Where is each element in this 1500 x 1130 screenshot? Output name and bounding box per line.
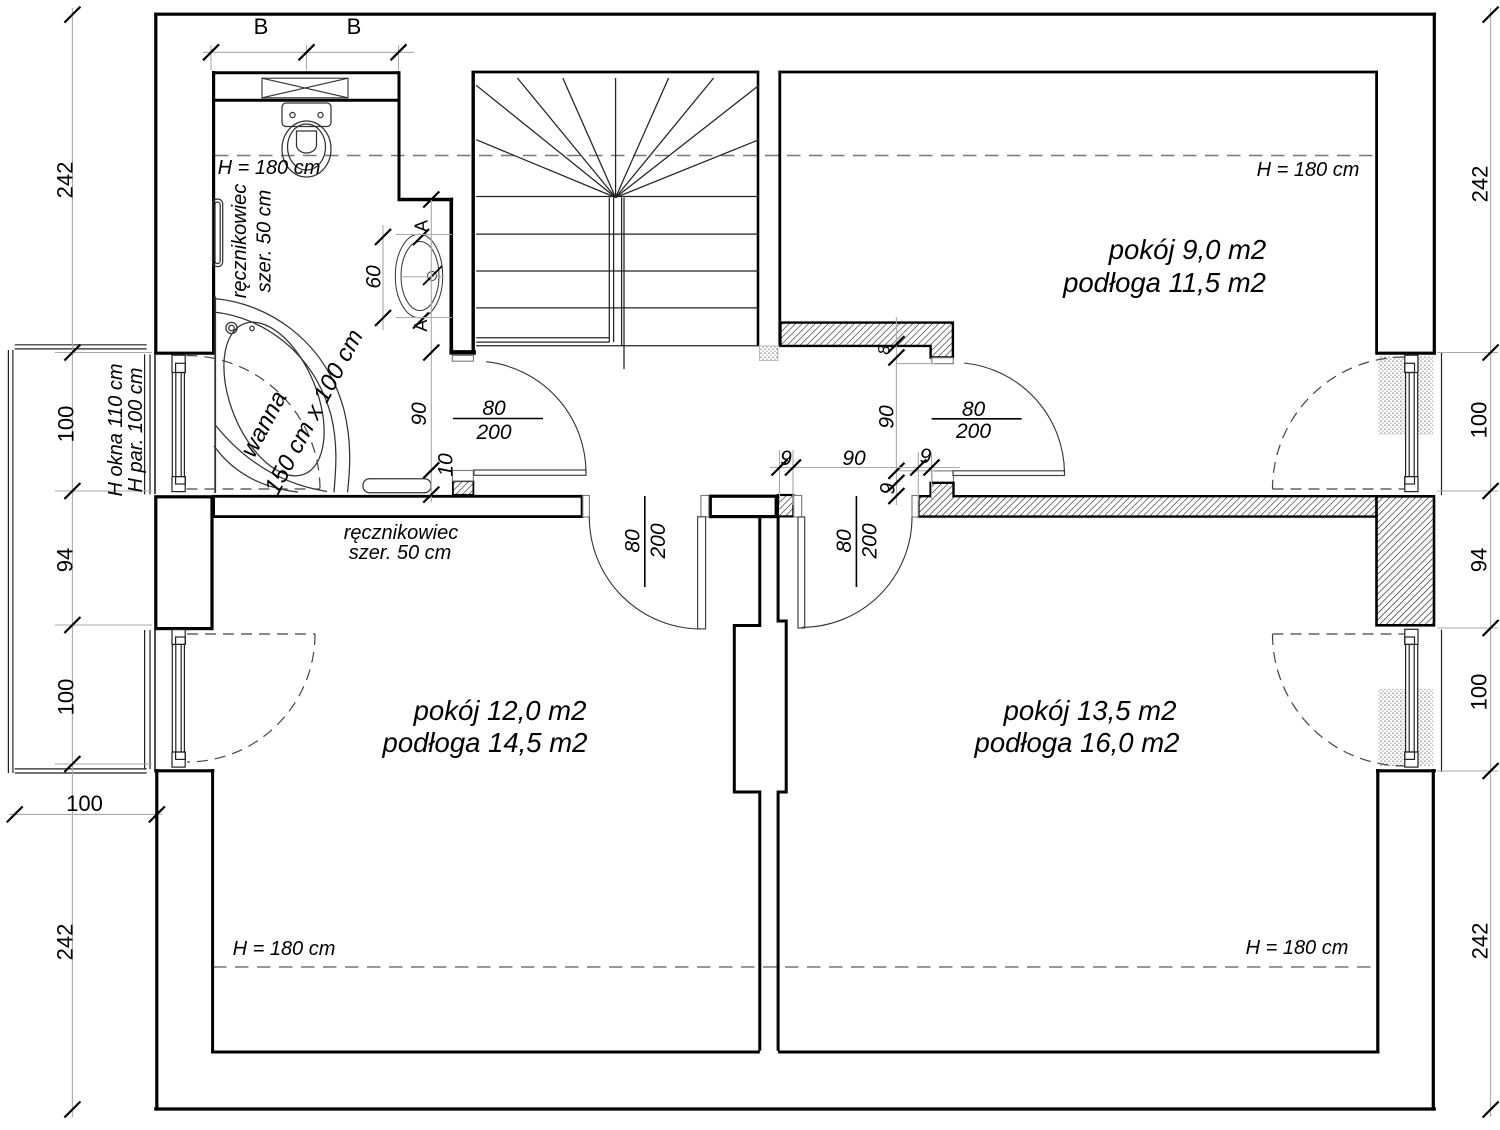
svg-text:H okna 110 cm: H okna 110 cm bbox=[105, 363, 127, 496]
svg-text:10: 10 bbox=[435, 453, 458, 477]
svg-text:szer. 50 cm: szer. 50 cm bbox=[254, 190, 276, 293]
svg-text:100: 100 bbox=[54, 406, 79, 443]
svg-text:80: 80 bbox=[482, 397, 506, 420]
svg-text:90: 90 bbox=[842, 447, 866, 470]
svg-text:H par. 100 cm: H par. 100 cm bbox=[125, 368, 147, 493]
svg-text:pokój 13,5 m2: pokój 13,5 m2 bbox=[1003, 695, 1177, 726]
svg-text:80: 80 bbox=[833, 529, 856, 553]
svg-text:ręcznikowiec: ręcznikowiec bbox=[229, 184, 251, 298]
svg-text:szer. 50 cm: szer. 50 cm bbox=[349, 542, 452, 564]
svg-text:242: 242 bbox=[1468, 166, 1493, 203]
svg-text:pokój 9,0 m2: pokój 9,0 m2 bbox=[1108, 234, 1266, 265]
svg-text:H = 180 cm: H = 180 cm bbox=[1246, 937, 1349, 959]
svg-text:90: 90 bbox=[408, 402, 431, 426]
svg-text:90: 90 bbox=[876, 405, 899, 429]
svg-text:podłoga 11,5 m2: podłoga 11,5 m2 bbox=[1062, 267, 1266, 298]
svg-text:242: 242 bbox=[53, 924, 78, 961]
svg-text:200: 200 bbox=[859, 523, 882, 559]
svg-text:podłoga 14,5 m2: podłoga 14,5 m2 bbox=[382, 727, 588, 758]
svg-text:H = 180 cm: H = 180 cm bbox=[233, 938, 336, 960]
svg-text:100: 100 bbox=[1467, 674, 1492, 711]
svg-text:80: 80 bbox=[622, 529, 645, 553]
svg-text:A: A bbox=[411, 320, 431, 332]
svg-text:8: 8 bbox=[875, 345, 894, 355]
svg-text:94: 94 bbox=[53, 548, 78, 572]
svg-text:B: B bbox=[347, 14, 362, 39]
svg-text:ręcznikowiec: ręcznikowiec bbox=[344, 522, 458, 544]
svg-text:9: 9 bbox=[877, 483, 900, 495]
svg-text:242: 242 bbox=[53, 162, 78, 199]
svg-text:200: 200 bbox=[475, 421, 511, 444]
svg-text:H = 180 cm: H = 180 cm bbox=[1257, 159, 1360, 181]
svg-text:94: 94 bbox=[1467, 548, 1492, 572]
svg-text:podłoga 16,0 m2: podłoga 16,0 m2 bbox=[974, 727, 1180, 758]
svg-text:100: 100 bbox=[54, 679, 79, 716]
svg-text:242: 242 bbox=[1468, 923, 1493, 960]
svg-text:200: 200 bbox=[647, 523, 670, 559]
svg-text:80: 80 bbox=[962, 398, 986, 421]
svg-text:9: 9 bbox=[920, 445, 932, 468]
svg-text:A: A bbox=[412, 220, 432, 232]
svg-text:100: 100 bbox=[66, 791, 103, 816]
svg-text:100: 100 bbox=[1467, 402, 1492, 439]
svg-text:200: 200 bbox=[955, 420, 991, 443]
svg-text:H = 180 cm: H = 180 cm bbox=[218, 157, 321, 179]
svg-text:60: 60 bbox=[363, 265, 386, 289]
svg-text:pokój 12,0 m2: pokój 12,0 m2 bbox=[413, 695, 587, 726]
svg-text:9: 9 bbox=[780, 447, 792, 470]
svg-text:B: B bbox=[254, 14, 269, 39]
